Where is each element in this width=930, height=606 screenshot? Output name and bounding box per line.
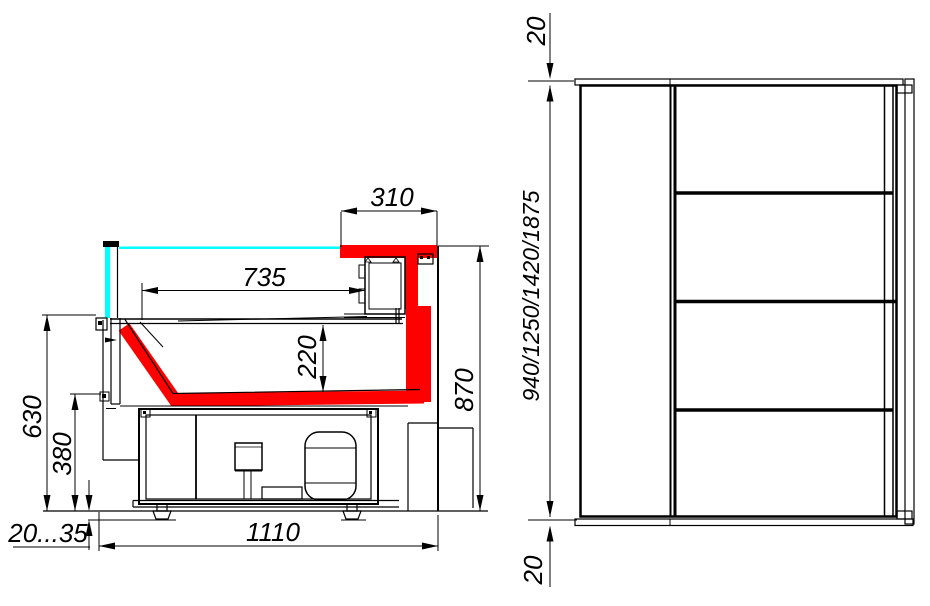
machine-compartment [133, 409, 399, 507]
dim-310-label: 310 [370, 182, 414, 212]
dim-length-options: 940/1250/1420/1875 [518, 86, 553, 518]
dim-380: 380 [47, 394, 101, 511]
glass-top-shelf [119, 247, 340, 250]
side-section-view: 310 735 220 870 [7, 182, 489, 551]
dim-310: 310 [341, 182, 437, 247]
dim-1110: 1110 [99, 512, 438, 551]
drawing-svg: 310 735 220 870 [0, 0, 930, 606]
dim-870-label: 870 [449, 368, 479, 412]
case-body [581, 86, 897, 517]
front-view: 20 940/1250/1420/1875 20 [518, 13, 914, 587]
dim-735-label: 735 [242, 262, 286, 292]
glass-front [103, 241, 340, 318]
dim-feet-adjust: 20...35 [7, 480, 92, 550]
dim-870: 870 [438, 246, 489, 511]
dim-630-label: 630 [17, 395, 47, 439]
technical-drawing-canvas: 310 735 220 870 [0, 0, 930, 606]
dim-380-label: 380 [47, 432, 77, 476]
compressor [305, 432, 356, 500]
dim-feet-label: 20...35 [7, 518, 88, 548]
dim-220: 220 [292, 325, 326, 392]
dim-bottom-20: 20 [518, 520, 577, 587]
dim-bottom-20-label: 20 [518, 555, 548, 585]
dim-220-label: 220 [292, 335, 322, 380]
dim-630: 630 [17, 315, 96, 511]
rear-rail [897, 79, 914, 524]
drip-tray [262, 487, 302, 499]
bottom-end-strip [575, 519, 913, 526]
dim-1110-label: 1110 [246, 517, 301, 547]
top-end-strip [575, 79, 903, 85]
dim-length-options-label: 940/1250/1420/1875 [518, 190, 544, 401]
dim-top-20: 20 [521, 13, 574, 102]
dim-735: 735 [142, 262, 365, 320]
dim-top-20-label: 20 [521, 16, 551, 46]
